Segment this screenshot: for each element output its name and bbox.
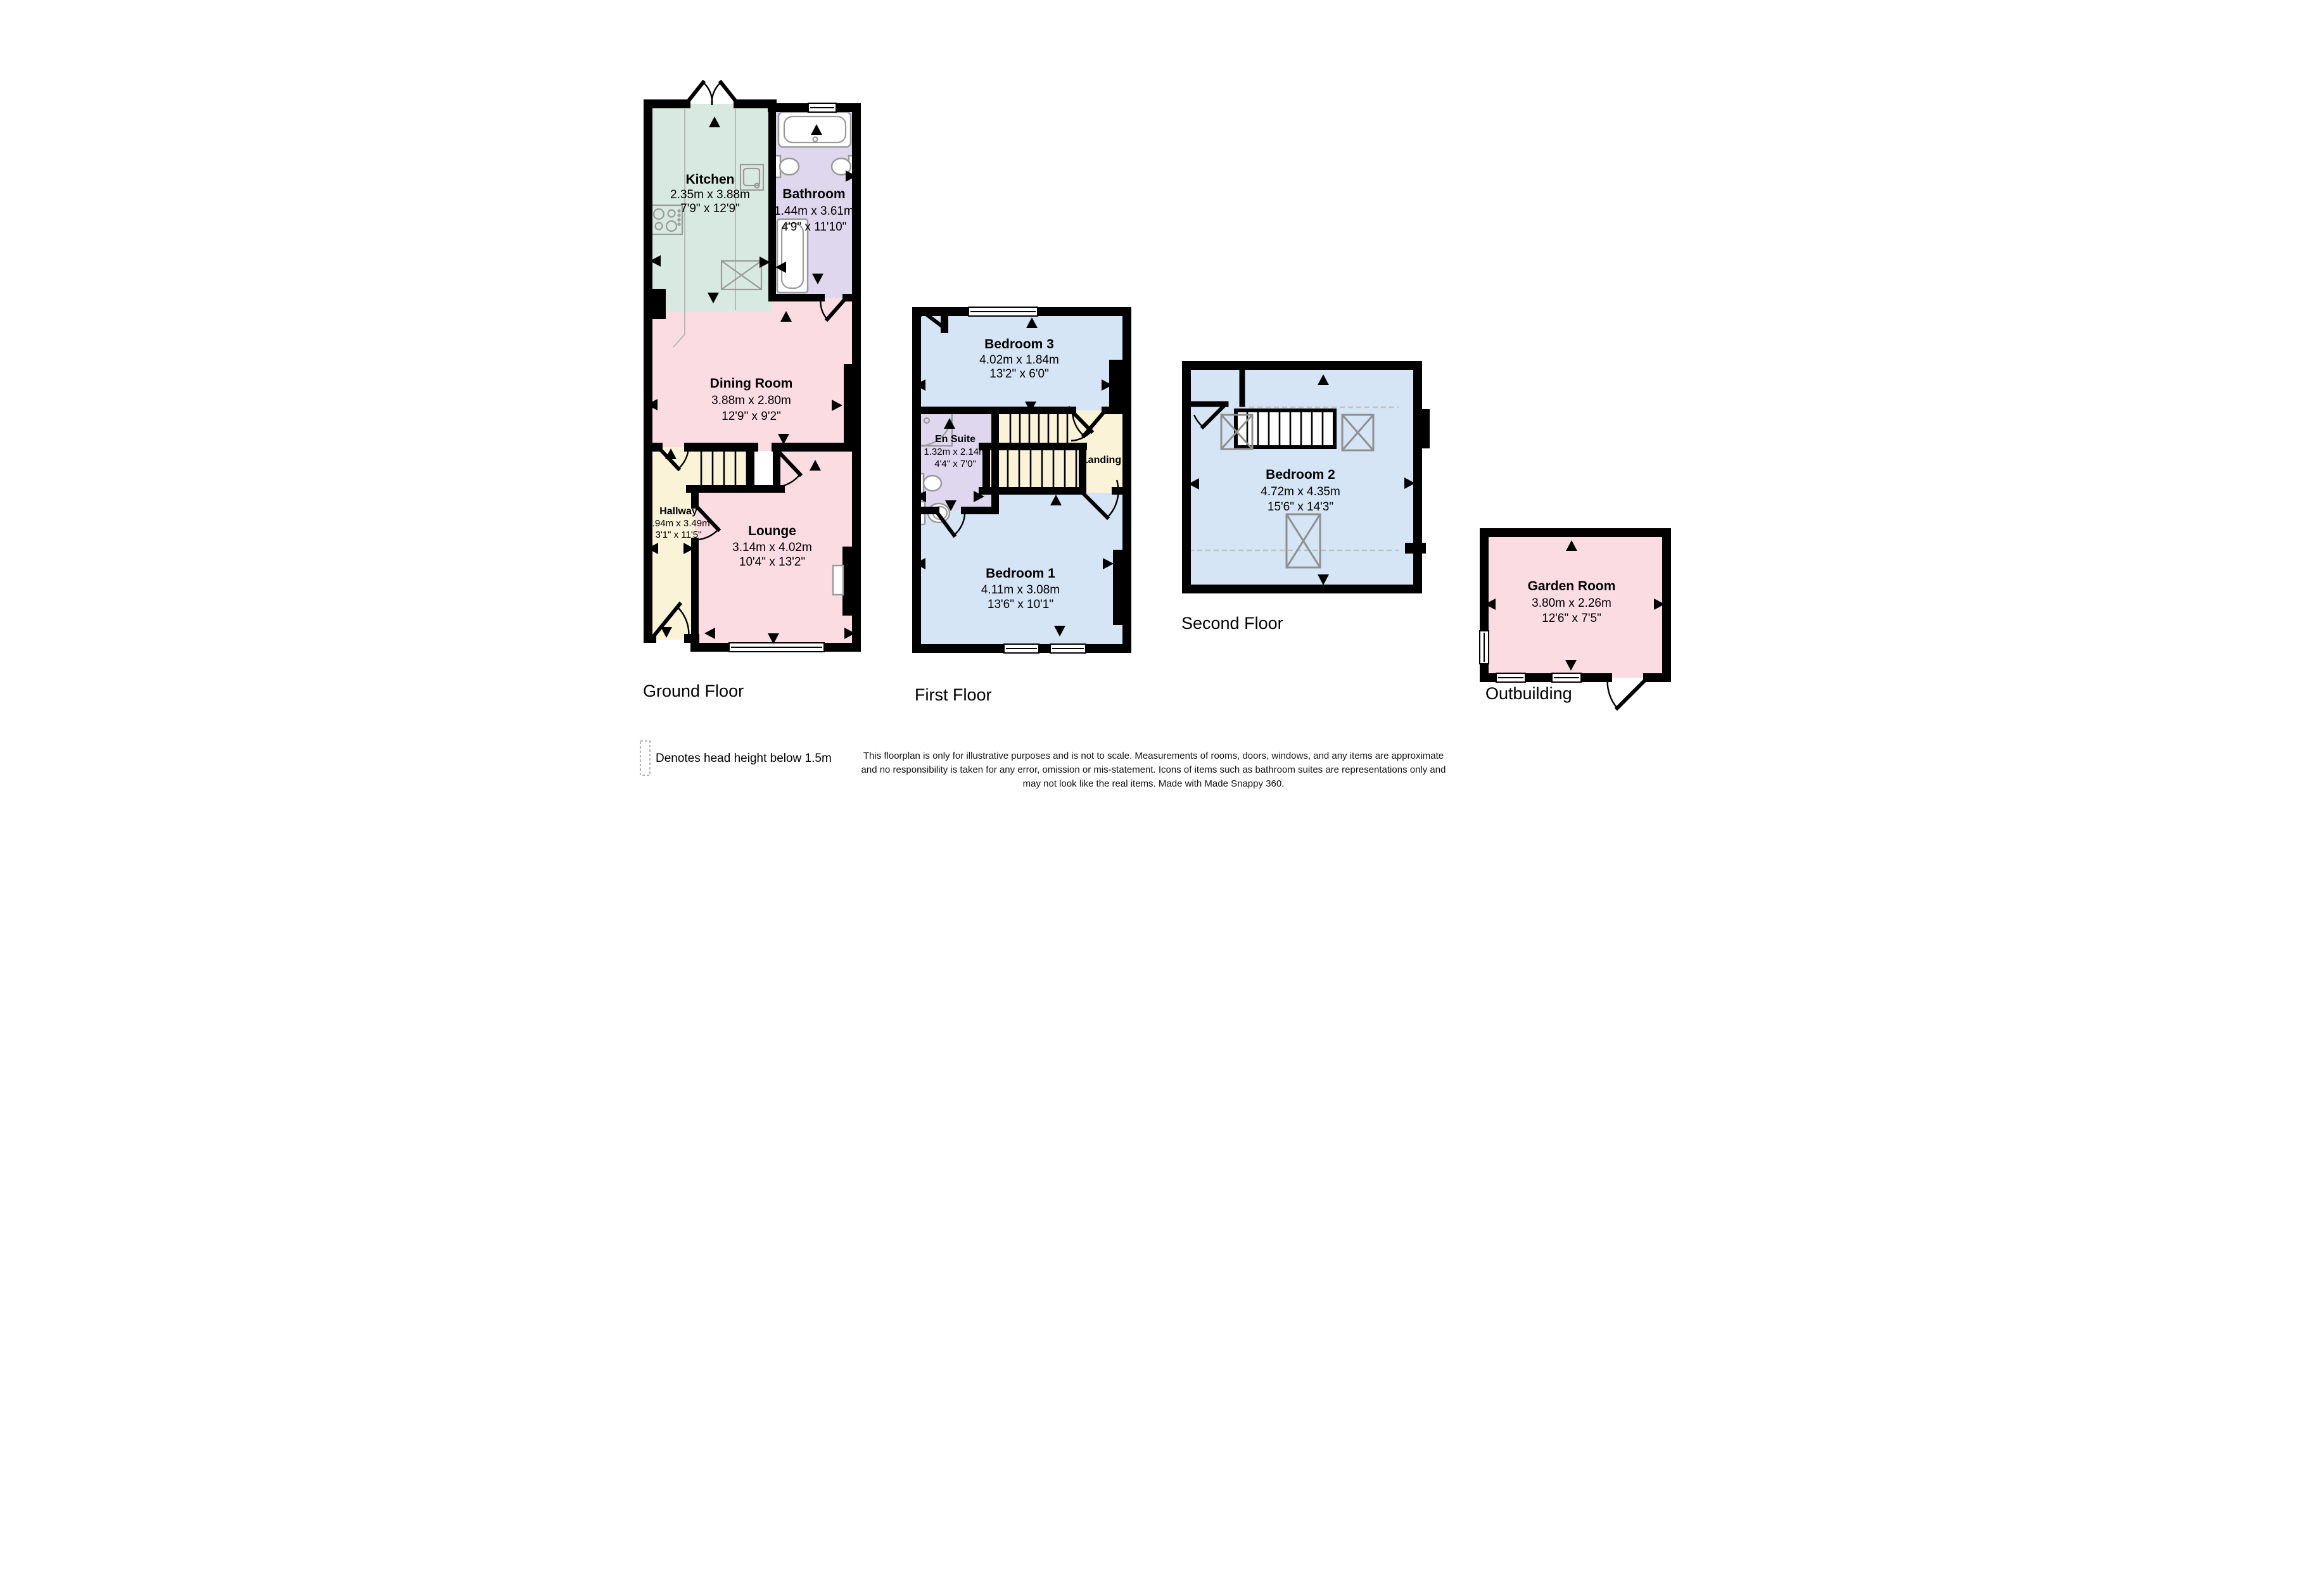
dining-label: Dining Room — [709, 376, 792, 391]
first-stairs-lower-fill — [985, 448, 1081, 490]
hallway-dims-imperial: 3'1" x 11'5" — [655, 529, 701, 540]
bathroom-window — [808, 103, 836, 112]
bedroom2-dims-imperial: 15'6" x 14'3" — [1267, 500, 1333, 514]
floorplan-page: Kitchen 2.35m x 3.88m 7'9" x 12'9" Bathr… — [577, 0, 1731, 798]
kitchen-dims-metric: 2.35m x 3.88m — [670, 188, 750, 201]
kitchen-dims-imperial: 7'9" x 12'9" — [680, 202, 740, 215]
dining-dims-imperial: 12'9" x 9'2" — [721, 410, 781, 423]
first-floor-title: First Floor — [915, 685, 992, 704]
garden-window-bottom-left — [1496, 673, 1525, 682]
garden-room-label: Garden Room — [1527, 579, 1615, 593]
garden-door-leaf — [1617, 678, 1648, 708]
ground-floor-title: Ground Floor — [643, 681, 744, 700]
kitchen-label: Kitchen — [685, 172, 734, 187]
stair-threshold — [754, 451, 776, 486]
bedroom3-window — [969, 307, 1038, 316]
disclaimer-line-2: and no responsibility is taken for any e… — [861, 764, 1446, 775]
bedroom1-window-left — [1004, 644, 1039, 653]
bedroom1-label: Bedroom 1 — [986, 566, 1055, 581]
lounge-dims-metric: 3.14m x 4.02m — [732, 541, 812, 554]
bedroom2-dims-metric: 4.72m x 4.35m — [1261, 485, 1340, 498]
hallway-label: Hallway — [659, 506, 697, 517]
first-floor-plan: Bedroom 3 4.02m x 1.84m 13'2" x 6'0" En … — [915, 307, 1129, 704]
disclaimer-line-1: This floorplan is only for illustrative … — [863, 750, 1443, 761]
disclaimer: This floorplan is only for illustrative … — [861, 750, 1446, 789]
second-floor-title: Second Floor — [1181, 614, 1283, 633]
ensuite-dims-metric: 1.32m x 2.14m — [924, 446, 986, 457]
hallway-room-fill — [648, 447, 695, 640]
hallway-dims-metric: 0.94m x 3.49m — [647, 518, 709, 529]
bedroom2-label: Bedroom 2 — [1266, 467, 1335, 482]
second-floor-plan: Bedroom 2 4.72m x 4.35m 15'6" x 14'3" Se… — [1181, 365, 1430, 633]
lounge-dims-imperial: 10'4" x 13'2" — [739, 555, 804, 569]
head-height-legend-icon — [640, 741, 650, 775]
garden-window-bottom-right — [1552, 673, 1581, 682]
legend: Denotes head height below 1.5m — [640, 741, 832, 775]
bathroom-label: Bathroom — [782, 187, 845, 201]
dining-dims-metric: 3.88m x 2.80m — [711, 394, 791, 407]
garden-room-dims-metric: 3.80m x 2.26m — [1532, 597, 1611, 610]
disclaimer-line-3: may not look like the real items. Made w… — [1022, 778, 1284, 789]
ensuite-label: En Suite — [934, 434, 975, 445]
garden-window-left — [1480, 631, 1489, 664]
ensuite-dims-imperial: 4'4" x 7'0" — [934, 459, 976, 469]
garden-room-dims-imperial: 12'6" x 7'5" — [1542, 612, 1601, 625]
bathroom-dims-imperial: 4'9" x 11'10" — [781, 220, 846, 234]
bedroom1-dims-imperial: 13'6" x 10'1" — [987, 598, 1053, 611]
lounge-label: Lounge — [748, 524, 796, 538]
landing-label: Landing — [1081, 455, 1121, 465]
outbuilding-title: Outbuilding — [1485, 684, 1572, 703]
outbuilding-plan: Garden Room 3.80m x 2.26m 12'6" x 7'5" O… — [1480, 533, 1667, 708]
fireplace-icon — [833, 566, 843, 595]
ensuite-sink-icon — [918, 474, 941, 493]
bedroom1-dims-metric: 4.11m x 3.08m — [981, 583, 1059, 597]
lounge-window — [729, 643, 824, 652]
dining-room-fill — [648, 298, 856, 451]
bedroom3-dims-imperial: 13'2" x 6'0" — [989, 367, 1049, 381]
bedroom3-dims-metric: 4.02m x 1.84m — [979, 353, 1059, 367]
garden-door-arc — [1607, 678, 1617, 708]
bedroom3-label: Bedroom 3 — [984, 337, 1054, 351]
bedroom1-window-right — [1050, 644, 1086, 653]
ground-floor-plan: Kitchen 2.35m x 3.88m 7'9" x 12'9" Bathr… — [643, 82, 859, 700]
legend-text: Denotes head height below 1.5m — [656, 752, 832, 765]
bathroom-dims-metric: 1.44m x 3.61m — [774, 205, 854, 218]
floorplan-canvas: Kitchen 2.35m x 3.88m 7'9" x 12'9" Bathr… — [577, 0, 1731, 798]
